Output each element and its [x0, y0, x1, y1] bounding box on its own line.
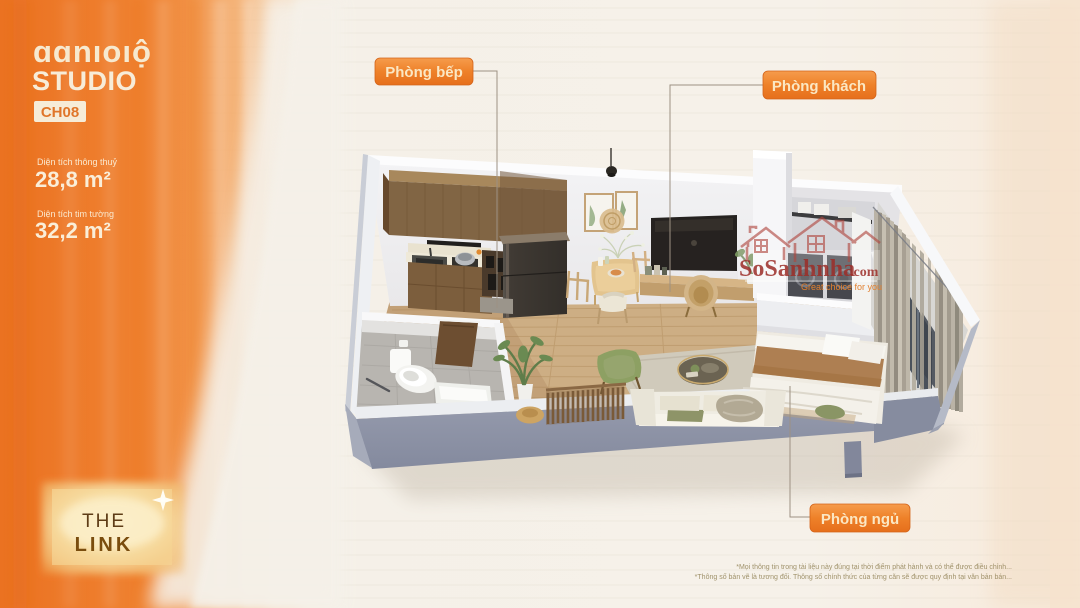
- svg-text:Phòng ngủ: Phòng ngủ: [821, 511, 899, 528]
- svg-text:STUDIO: STUDIO: [32, 66, 137, 96]
- svg-text:32,2 m²: 32,2 m²: [35, 218, 111, 243]
- svg-text:LINK: LINK: [75, 534, 134, 556]
- svg-text:ɑɑnıoıộ: ɑɑnıoıộ: [33, 34, 152, 69]
- svg-text:Phòng khách: Phòng khách: [772, 78, 866, 95]
- svg-text:Diện tích thông thuỷ: Diện tích thông thuỷ: [37, 157, 118, 167]
- svg-text:*Mọi thông tin trong tài liệu: *Mọi thông tin trong tài liệu này đúng t…: [736, 562, 1012, 571]
- svg-text:SoSanhnha: SoSanhnha: [739, 256, 855, 282]
- svg-text:Great choice for you: Great choice for you: [801, 282, 882, 292]
- svg-text:Phòng bếp: Phòng bếp: [385, 64, 463, 81]
- svg-text:CH08: CH08: [41, 104, 79, 121]
- svg-text:*Thông số bản vẽ là tương đối.: *Thông số bản vẽ là tương đối. Thông số …: [695, 572, 1012, 581]
- svg-text:.com: .com: [850, 265, 879, 280]
- svg-text:28,8 m²: 28,8 m²: [35, 167, 111, 192]
- svg-text:THE: THE: [82, 511, 126, 532]
